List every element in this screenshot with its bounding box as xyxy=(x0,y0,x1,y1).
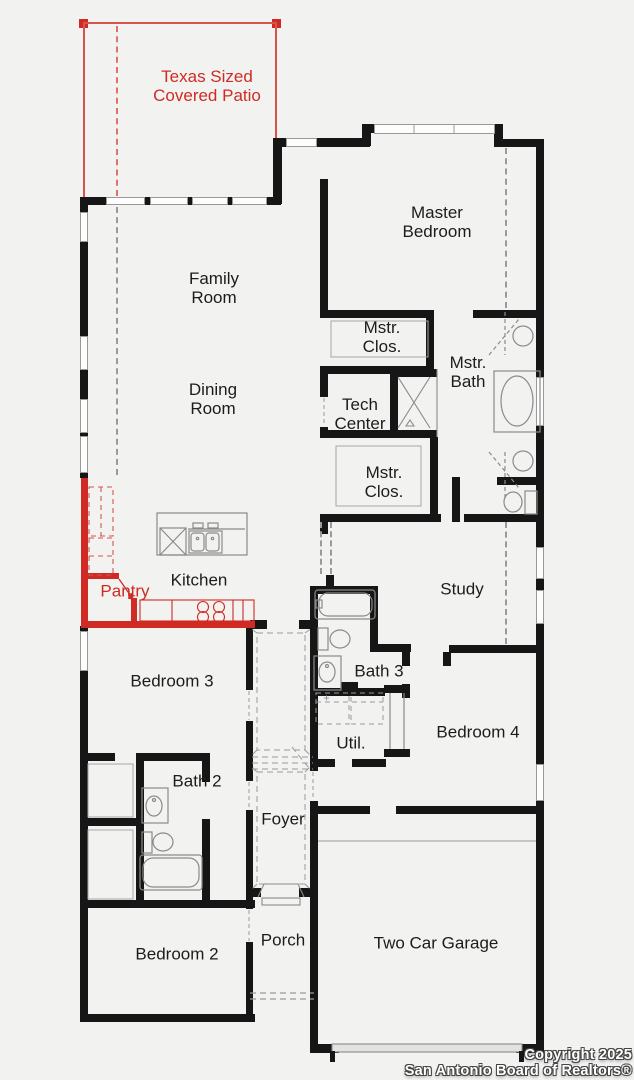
wall xyxy=(320,179,328,313)
wall xyxy=(384,749,410,757)
room-label-bedroom-3: Bedroom 3 xyxy=(130,671,213,690)
wall xyxy=(312,759,335,767)
wall xyxy=(202,819,210,908)
room-label-garage: Two Car Garage xyxy=(374,933,499,952)
pantry-wall xyxy=(131,598,137,624)
wall xyxy=(341,682,358,690)
wall xyxy=(82,753,115,761)
sink xyxy=(513,451,533,471)
wall xyxy=(370,588,378,651)
pantry-shelves xyxy=(89,487,113,575)
wall xyxy=(430,437,438,522)
cooktop-counter xyxy=(140,600,254,623)
wall xyxy=(273,138,282,204)
door-opening xyxy=(246,909,253,942)
garden-tub xyxy=(494,371,540,432)
wall xyxy=(370,644,411,652)
sink xyxy=(319,662,335,682)
wall xyxy=(136,753,144,908)
wall xyxy=(390,369,398,437)
floor-plan: Texas Sized Covered Patio Family Room Di… xyxy=(0,0,634,1080)
wall xyxy=(312,806,544,814)
kitchen-island xyxy=(157,513,247,555)
pantry-wall xyxy=(81,573,119,579)
window xyxy=(536,764,544,801)
wall xyxy=(246,628,253,1022)
copyright-watermark: Copyright 2025 San Antonio Board of Real… xyxy=(405,1047,632,1079)
room-label-porch: Porch xyxy=(261,930,305,949)
window xyxy=(150,197,188,205)
front-door xyxy=(258,884,304,905)
dashed-line xyxy=(116,207,118,475)
sink-counter xyxy=(314,656,341,690)
room-label-bath-3: Bath 3 xyxy=(354,661,403,680)
copyright-line-2: San Antonio Board of Realtors® xyxy=(405,1063,632,1079)
room-label-foyer: Foyer xyxy=(261,809,304,828)
washer-dryer xyxy=(316,693,383,724)
bathtub xyxy=(315,590,375,619)
room-label-kitchen: Kitchen xyxy=(171,570,228,589)
room-label-master-closet-1: Mstr. Clos. xyxy=(363,318,402,356)
wall xyxy=(80,900,255,908)
shower xyxy=(398,369,437,437)
dashed-line xyxy=(320,522,322,574)
wall xyxy=(136,753,210,761)
dashed-line xyxy=(116,26,118,196)
room-label-patio: Texas Sized Covered Patio xyxy=(153,67,261,105)
window xyxy=(80,212,88,242)
window xyxy=(80,399,88,433)
wall xyxy=(497,477,544,485)
room-label-study: Study xyxy=(440,579,483,598)
patio-edge xyxy=(275,22,277,140)
room-label-tech-center: Tech Center xyxy=(334,395,385,433)
window xyxy=(80,631,88,671)
wall xyxy=(452,477,460,522)
wall xyxy=(473,310,544,318)
patio-edge xyxy=(83,22,85,198)
wall xyxy=(384,685,410,693)
window xyxy=(536,590,544,624)
window xyxy=(286,138,317,147)
wall xyxy=(320,310,434,318)
wall xyxy=(464,514,544,522)
wall xyxy=(320,514,441,522)
room-label-dining-room: Dining Room xyxy=(189,380,237,418)
bay-window xyxy=(374,124,495,134)
door-opening xyxy=(310,771,318,801)
porch-edge xyxy=(250,993,314,999)
copyright-line-1: Copyright 2025 xyxy=(405,1047,632,1063)
wall xyxy=(246,888,261,897)
wall xyxy=(310,586,318,1053)
wall xyxy=(310,1044,339,1053)
window xyxy=(232,197,267,205)
room-label-family-room: Family Room xyxy=(189,269,239,307)
window xyxy=(536,377,544,426)
door-opening xyxy=(246,690,253,721)
wall xyxy=(449,645,544,653)
room-label-bedroom-4: Bedroom 4 xyxy=(436,722,519,741)
bath2-fixtures xyxy=(140,788,202,890)
room-label-pantry: Pantry xyxy=(100,581,149,600)
window xyxy=(192,197,228,205)
dashed-line xyxy=(330,522,332,574)
window xyxy=(80,436,88,473)
toilet xyxy=(318,628,328,650)
bathtub xyxy=(140,855,202,890)
pantry-wall xyxy=(81,478,88,628)
gallery-tray xyxy=(250,628,313,891)
window xyxy=(106,197,145,205)
sink xyxy=(513,326,533,346)
dashed-line xyxy=(505,522,507,644)
wall xyxy=(299,888,318,897)
room-label-bath-2: Bath 2 xyxy=(172,771,221,790)
sink xyxy=(146,796,162,816)
door-opening xyxy=(370,806,396,814)
wall xyxy=(352,759,386,767)
sink-counter xyxy=(142,788,168,823)
wall xyxy=(82,818,137,826)
room-label-master-closet-2: Mstr. Clos. xyxy=(365,463,404,501)
window xyxy=(536,547,544,579)
wall xyxy=(312,586,378,594)
door-opening xyxy=(246,781,253,810)
closet-doors xyxy=(390,693,404,749)
room-label-master-bath: Mstr. Bath xyxy=(450,353,487,391)
room-label-master-bedroom: Master Bedroom xyxy=(403,203,472,241)
wall xyxy=(426,310,434,374)
window xyxy=(80,336,88,370)
room-label-util: Util. xyxy=(336,733,365,752)
dashed-line xyxy=(505,148,507,308)
wall xyxy=(80,1014,255,1022)
patio-edge xyxy=(83,22,277,24)
cased-opening xyxy=(320,397,328,427)
wall xyxy=(320,373,328,399)
kitchen-wall xyxy=(81,621,255,628)
wall xyxy=(443,652,451,666)
room-label-bedroom-2: Bedroom 2 xyxy=(135,944,218,963)
